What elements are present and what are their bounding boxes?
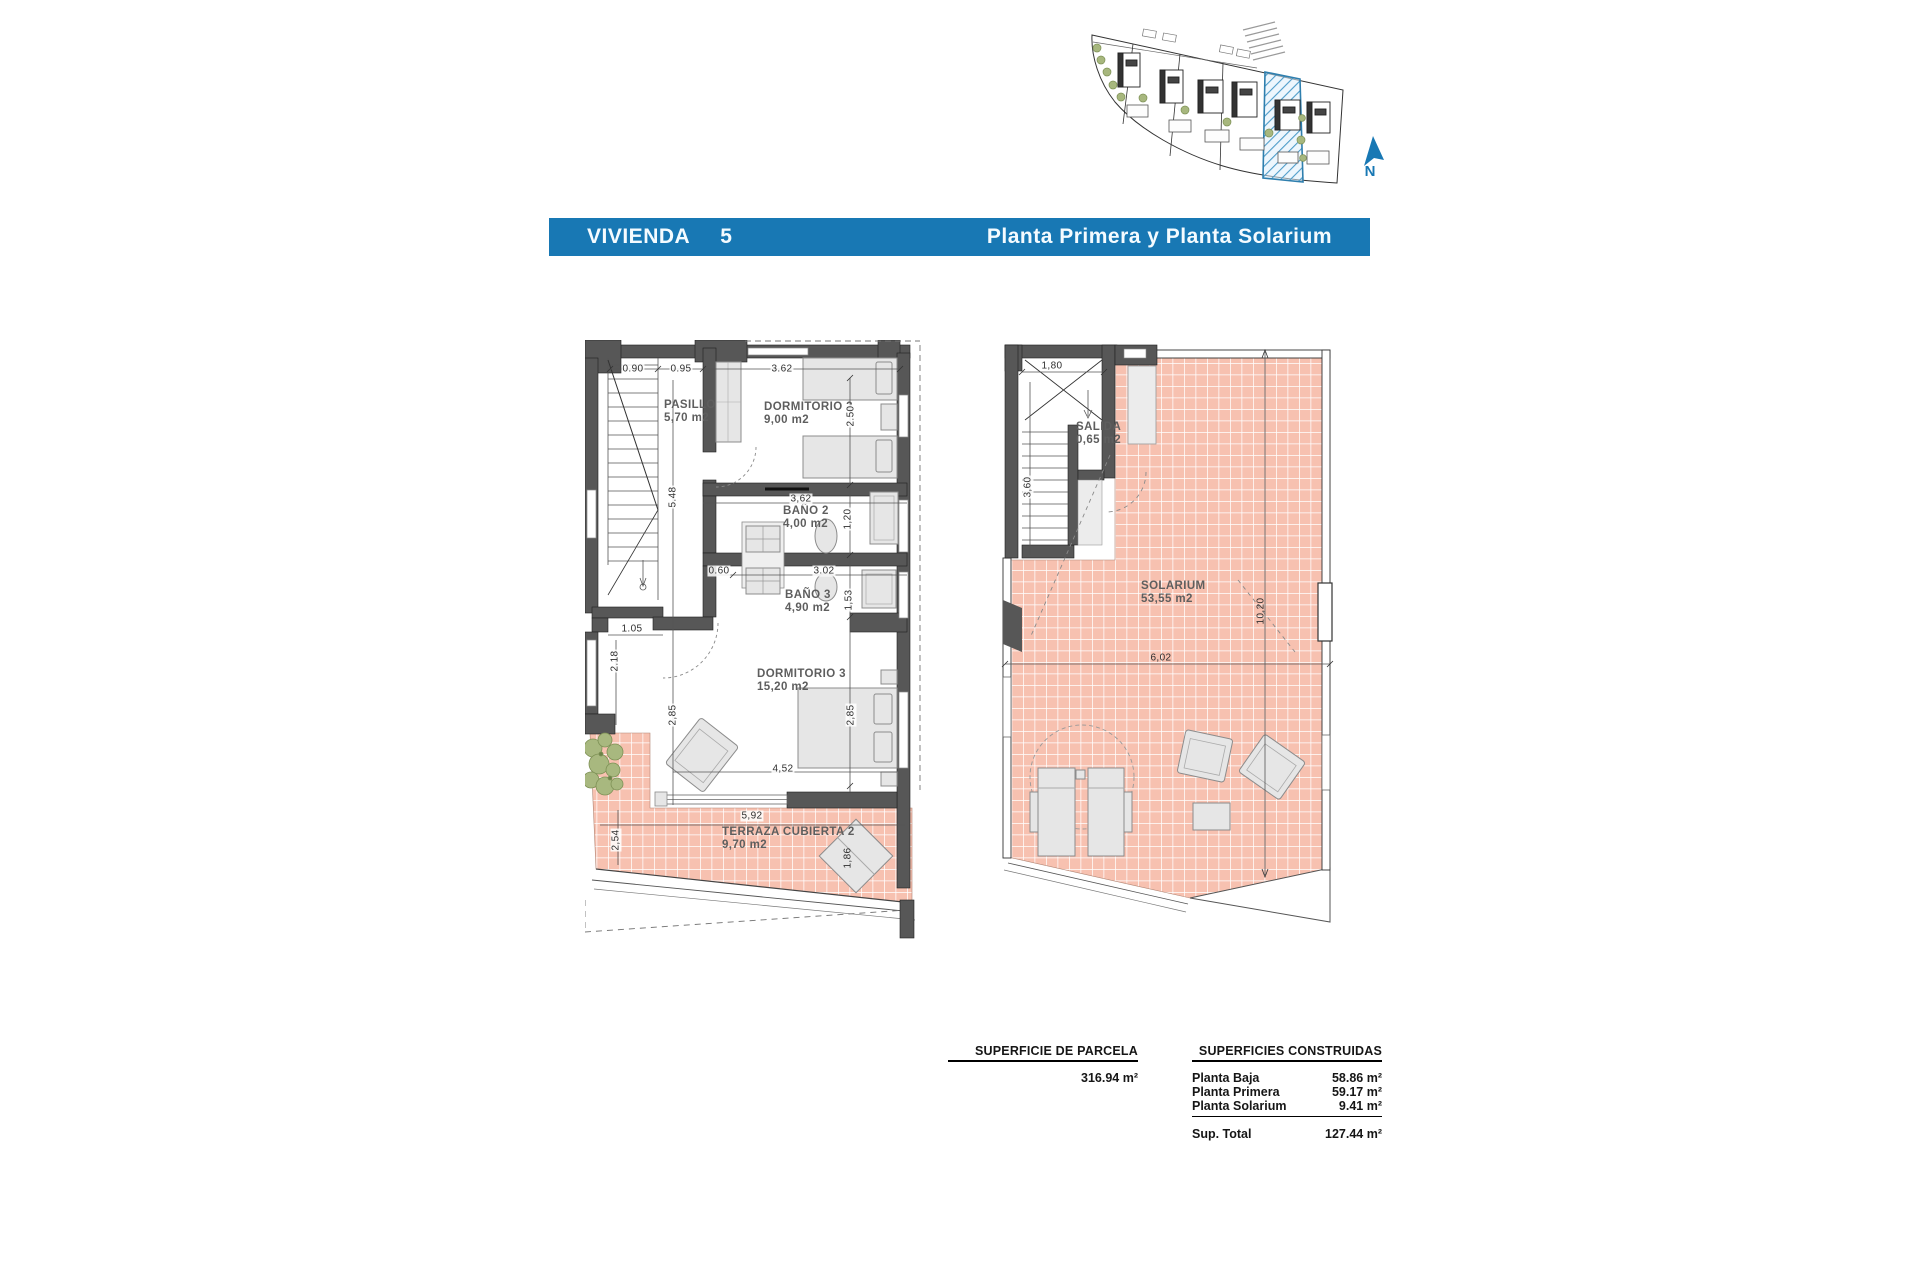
floor-plan-solarium <box>1000 340 1340 940</box>
dim-285-left: 2,85 <box>668 703 679 726</box>
room-pasillo: PASILLO 5,70 m2 <box>664 399 716 425</box>
dim-180: 1,80 <box>1040 361 1063 372</box>
dim-090: 0.90 <box>621 364 644 375</box>
parcel-table: SUPERFICIE DE PARCELA 316.94 m² <box>948 1044 1138 1085</box>
dim-362-bano: 3,62 <box>789 494 812 505</box>
site-plan <box>1085 8 1395 193</box>
pillar-slot <box>1124 349 1146 358</box>
table-row: Planta Solarium 9.41 m² <box>1192 1099 1382 1113</box>
total-row: Sup. Total 127.44 m² <box>1192 1127 1382 1141</box>
dim-254: 2,54 <box>611 828 622 851</box>
dim-186: 1,86 <box>843 846 854 869</box>
dim-360: 3,60 <box>1023 475 1034 498</box>
plan-subtitle: Planta Primera y Planta Solarium <box>987 225 1332 249</box>
room-bano-3: BAÑO 3 4,90 m2 <box>785 589 831 615</box>
dim-302: 3.02 <box>812 566 835 577</box>
room-dormitorio-3: DORMITORIO 3 15,20 m2 <box>757 668 846 694</box>
parcel-heading: SUPERFICIE DE PARCELA <box>948 1044 1138 1062</box>
room-salida: SALIDA 0,65 m2 <box>1076 421 1121 447</box>
dim-362-top: 3.62 <box>770 364 793 375</box>
dwelling-label: VIVIENDA <box>587 225 690 249</box>
built-heading: SUPERFICIES CONSTRUIDAS <box>1192 1044 1382 1062</box>
built-rows: Planta Baja 58.86 m² Planta Primera 59.1… <box>1192 1071 1382 1117</box>
dim-218: 2.18 <box>610 649 621 672</box>
dim-120: 1,20 <box>843 507 854 530</box>
total-value: 127.44 m² <box>1325 1127 1382 1141</box>
dim-105: 1.05 <box>620 624 643 635</box>
dim-153: 1,53 <box>844 588 855 611</box>
dim-1020: 10,20 <box>1256 596 1267 625</box>
north-label: N <box>1358 163 1382 180</box>
dim-592: 5,92 <box>740 811 763 822</box>
table-row: Planta Baja 58.86 m² <box>1192 1071 1382 1085</box>
room-bano-2: BAÑO 2 4,00 m2 <box>783 505 829 531</box>
room-dormitorio-2: DORMITORIO 2 9,00 m2 <box>764 401 853 427</box>
terrace-glass-door <box>655 792 787 806</box>
table-row: Planta Primera 59.17 m² <box>1192 1085 1382 1099</box>
terrace-corner-post <box>900 900 914 938</box>
dim-060: 0.60 <box>707 566 730 577</box>
parcel-value: 316.94 m² <box>948 1071 1138 1085</box>
staircase-first <box>608 358 658 600</box>
left-slot <box>1003 677 1011 737</box>
dim-602: 6,02 <box>1149 653 1172 664</box>
dim-285-right: 2,85 <box>846 703 857 726</box>
dim-250: 2.50 <box>846 404 857 427</box>
parapet-opening <box>1318 583 1332 641</box>
title-bar: VIVIENDA 5 Planta Primera y Planta Solar… <box>549 218 1370 256</box>
wall-wedge <box>1003 600 1022 652</box>
floor-plan-first <box>585 340 925 945</box>
dim-548: 5.48 <box>668 485 679 508</box>
dwelling-number: 5 <box>720 225 732 249</box>
roof-section <box>1128 366 1156 444</box>
total-label: Sup. Total <box>1192 1127 1252 1141</box>
north-arrow-icon <box>1364 136 1384 166</box>
dim-452: 4,52 <box>771 764 794 775</box>
room-solarium: SOLARIUM 53,55 m2 <box>1141 580 1206 606</box>
built-areas-table: SUPERFICIES CONSTRUIDAS Planta Baja 58.8… <box>1192 1044 1382 1141</box>
dim-095: 0.95 <box>669 364 692 375</box>
page: { "header": { "label": "VIVIENDA", "numb… <box>0 0 1920 1280</box>
salida-landing <box>1078 480 1102 545</box>
parapet-slot <box>1322 735 1330 790</box>
room-terraza-cubierta-2: TERRAZA CUBIERTA 2 9,70 m2 <box>722 826 855 852</box>
